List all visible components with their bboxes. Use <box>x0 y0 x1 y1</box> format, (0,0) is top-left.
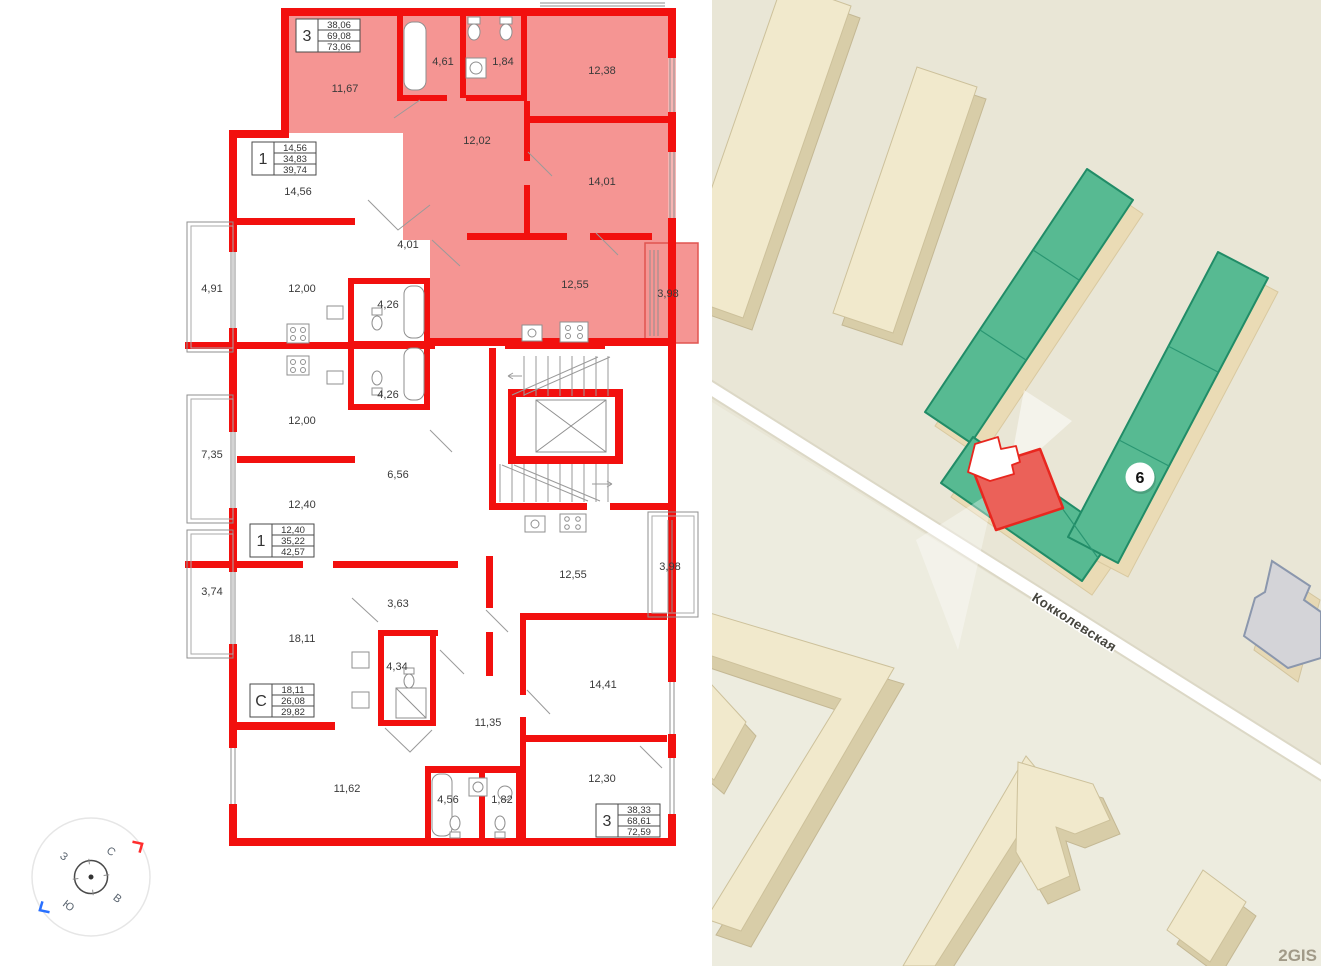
apartment-page: 6 Кокколевская 2GIS <box>0 0 1321 966</box>
svg-text:38,33: 38,33 <box>627 805 651 816</box>
svg-text:29,82: 29,82 <box>281 707 305 718</box>
elevator <box>536 400 606 452</box>
compass: С В Ю З <box>32 818 150 936</box>
svg-text:68,61: 68,61 <box>627 816 651 827</box>
svg-text:42,57: 42,57 <box>281 547 305 558</box>
svg-text:1: 1 <box>257 533 266 550</box>
room-area-label: 3,63 <box>387 598 408 610</box>
apartment-summary-box-studio[interactable]: С 18,11 26,08 29,82 <box>250 684 314 718</box>
room-area-label: 12,55 <box>559 569 587 581</box>
room-area-label: 4,26 <box>377 389 398 401</box>
svg-text:38,06: 38,06 <box>327 20 351 31</box>
room-area-label: 4,34 <box>386 661 407 673</box>
room-area-label: 4,01 <box>397 239 418 251</box>
apartment-summary-box-1room-a[interactable]: 1 14,56 34,83 39,74 <box>252 142 316 176</box>
svg-text:26,08: 26,08 <box>281 696 305 707</box>
room-area-label: 3,74 <box>201 586 222 598</box>
svg-text:3: 3 <box>303 28 312 45</box>
svg-text:73,06: 73,06 <box>327 42 351 53</box>
room-area-label: 11,35 <box>475 717 502 729</box>
floorplan-panel: 11,67 4,61 1,84 12,38 12,02 14,01 12,55 … <box>32 3 698 936</box>
svg-text:34,83: 34,83 <box>283 154 307 165</box>
svg-text:18,11: 18,11 <box>281 685 304 696</box>
svg-text:1: 1 <box>259 151 268 168</box>
room-area-label: 11,62 <box>334 783 361 795</box>
map-watermark: 2GIS <box>1278 946 1317 965</box>
svg-text:39,74: 39,74 <box>283 165 307 176</box>
apartment-summary-box-3room-b[interactable]: 3 38,33 68,61 72,59 <box>596 804 660 838</box>
room-area-label: 4,56 <box>437 794 458 806</box>
staircase-lower <box>500 464 612 502</box>
room-area-label: 14,41 <box>589 679 617 691</box>
room-area-label: 3,98 <box>657 288 678 300</box>
room-area-label: 6,56 <box>387 469 408 481</box>
room-area-label: 12,40 <box>288 499 316 511</box>
map-panel[interactable]: 6 Кокколевская 2GIS <box>675 0 1321 966</box>
svg-text:69,08: 69,08 <box>327 31 351 42</box>
room-area-label: 3,98 <box>659 561 680 573</box>
room-area-label: 12,30 <box>588 773 616 785</box>
svg-text:14,56: 14,56 <box>283 143 307 154</box>
room-area-label: 1,84 <box>492 56 513 68</box>
room-area-label: 4,61 <box>432 56 453 68</box>
room-area-label: 12,55 <box>561 279 589 291</box>
room-area-label: 14,56 <box>284 186 312 198</box>
svg-text:12,40: 12,40 <box>281 525 305 536</box>
svg-text:3: 3 <box>603 813 612 830</box>
room-area-label: 1,82 <box>491 794 512 806</box>
apartment-summary-box-1room-b[interactable]: 1 12,40 35,22 42,57 <box>250 524 314 558</box>
room-area-label: 4,26 <box>377 299 398 311</box>
room-area-label: 11,67 <box>332 83 359 95</box>
svg-text:35,22: 35,22 <box>281 536 305 547</box>
room-area-label: 12,38 <box>588 65 616 77</box>
room-area-label: 4,91 <box>201 283 222 295</box>
svg-text:72,59: 72,59 <box>627 827 651 838</box>
room-area-label: 12,00 <box>288 283 316 295</box>
svg-text:С: С <box>255 693 267 710</box>
apartment-summary-box-3room-selected[interactable]: 3 38,06 69,08 73,06 <box>296 19 360 53</box>
room-area-label: 18,11 <box>289 633 316 645</box>
room-area-label: 12,02 <box>463 135 491 147</box>
badge-label: 6 <box>1136 470 1145 487</box>
room-area-label: 14,01 <box>588 176 616 188</box>
room-area-label: 12,00 <box>288 415 316 427</box>
room-area-label: 7,35 <box>201 449 222 461</box>
